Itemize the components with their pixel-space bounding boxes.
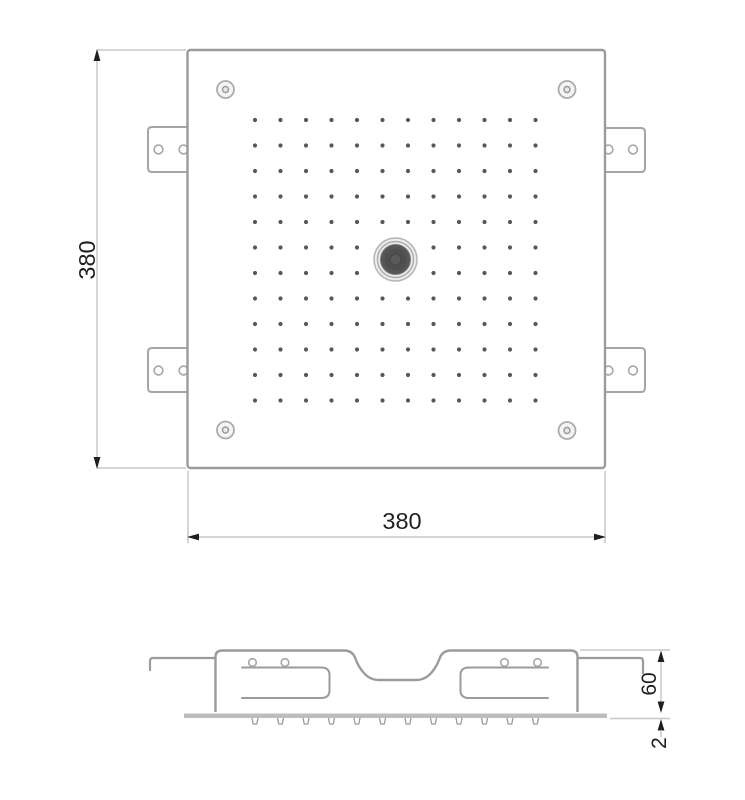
spray-nozzle-dot	[278, 373, 282, 377]
spray-nozzle-dot	[380, 398, 384, 402]
spray-nozzle-dot	[278, 296, 282, 300]
spray-nozzle-dot	[355, 373, 359, 377]
spray-nozzle-dot	[278, 143, 282, 147]
mounting-bracket-bottom-left	[148, 348, 189, 392]
spray-nozzle-dot	[329, 271, 333, 275]
spray-nozzle-dot	[253, 169, 257, 173]
spray-nozzle-dot	[457, 373, 461, 377]
spray-nozzle-dot	[355, 347, 359, 351]
dimension-label-plate-thickness: 2	[648, 737, 671, 749]
spray-nozzle-dot	[457, 271, 461, 275]
spray-nozzle-dot	[431, 245, 435, 249]
side-nozzle-tick	[507, 718, 513, 724]
spray-nozzle-dot	[329, 373, 333, 377]
spray-nozzle-dot	[482, 373, 486, 377]
spray-nozzle-dot	[355, 271, 359, 275]
spray-nozzle-dot	[304, 194, 308, 198]
spray-nozzle-dot	[533, 245, 537, 249]
side-hook-left	[150, 658, 214, 670]
spray-nozzle-dot	[508, 169, 512, 173]
spray-nozzle-dot	[380, 118, 384, 122]
side-nozzle-tick	[329, 718, 335, 724]
spray-nozzle-dot	[533, 398, 537, 402]
spray-nozzle-dot	[482, 169, 486, 173]
spray-nozzle-dot	[533, 296, 537, 300]
spray-nozzle-dot	[457, 245, 461, 249]
spray-nozzle-dot	[533, 220, 537, 224]
spray-nozzle-dot	[457, 143, 461, 147]
spray-nozzle-dot	[380, 373, 384, 377]
spray-nozzle-dot	[482, 194, 486, 198]
spray-nozzle-dot	[253, 245, 257, 249]
spray-nozzle-dot	[533, 271, 537, 275]
spray-nozzle-dot	[355, 220, 359, 224]
spray-nozzle-dot	[457, 169, 461, 173]
spray-nozzle-dot	[355, 398, 359, 402]
corner-screw-top-left	[217, 81, 234, 98]
spray-nozzle-dot	[304, 296, 308, 300]
spray-nozzle-dot	[508, 194, 512, 198]
spray-nozzle-dot	[482, 118, 486, 122]
spray-nozzle-dot	[253, 322, 257, 326]
technical-drawing-canvas: 380 380	[0, 0, 745, 800]
dimension-height: 380	[74, 49, 186, 469]
spray-nozzle-dot	[482, 296, 486, 300]
spray-nozzle-dot	[533, 118, 537, 122]
spray-nozzle-dot	[533, 322, 537, 326]
spray-nozzle-dot	[508, 143, 512, 147]
spray-nozzle-dot	[457, 118, 461, 122]
spray-nozzle-dot	[304, 347, 308, 351]
side-nozzle-tick	[278, 718, 284, 724]
dimension-label-width: 380	[382, 508, 421, 534]
side-hook-right	[579, 658, 643, 673]
spray-nozzle-dot	[406, 118, 410, 122]
arrow-right-icon	[594, 534, 606, 541]
spray-nozzle-dot	[406, 296, 410, 300]
spray-nozzle-dot	[431, 373, 435, 377]
top-view: 380 380	[74, 49, 645, 543]
spray-nozzle-dot	[355, 296, 359, 300]
spray-nozzle-dot	[508, 220, 512, 224]
spray-nozzle-dot	[355, 143, 359, 147]
spray-nozzle-dot	[508, 373, 512, 377]
corner-screw-top-right	[559, 81, 576, 98]
spray-nozzle-dot	[457, 296, 461, 300]
spray-nozzle-dot	[278, 194, 282, 198]
bracket-hole	[154, 145, 163, 154]
spray-nozzle-dot	[406, 322, 410, 326]
spray-nozzle-dot	[431, 194, 435, 198]
spray-nozzle-dot	[278, 118, 282, 122]
spray-nozzle-dot	[406, 194, 410, 198]
spray-nozzle-dot	[431, 322, 435, 326]
spray-nozzle-dot	[304, 271, 308, 275]
spray-nozzle-dot	[482, 271, 486, 275]
spray-nozzle-dot	[278, 245, 282, 249]
spray-nozzle-dot	[253, 296, 257, 300]
spray-nozzle-dot	[508, 398, 512, 402]
spray-nozzle-dot	[253, 271, 257, 275]
flange-hole	[249, 659, 257, 667]
side-nozzle-tick	[456, 718, 462, 724]
spray-nozzle-dot	[304, 169, 308, 173]
spray-nozzle-dot	[482, 245, 486, 249]
spray-nozzle-dot	[355, 322, 359, 326]
side-nozzle-tick	[533, 718, 539, 724]
side-nozzle-tick	[405, 718, 411, 724]
spray-nozzle-dot	[329, 398, 333, 402]
face-plate	[184, 714, 607, 719]
arrow-up-icon	[658, 651, 665, 663]
spray-nozzle-dot	[329, 220, 333, 224]
spray-nozzle-dot	[355, 118, 359, 122]
bracket-hole	[629, 366, 638, 375]
spray-nozzle-dot	[304, 373, 308, 377]
spray-nozzle-dot	[253, 143, 257, 147]
spray-nozzle-dot	[278, 322, 282, 326]
spray-nozzle-dot	[380, 143, 384, 147]
spray-nozzle-dot	[304, 398, 308, 402]
flange-hole	[281, 659, 289, 667]
mounting-bracket-bottom-right	[603, 348, 645, 392]
spray-nozzle-dot	[508, 322, 512, 326]
spray-nozzle-dot	[278, 220, 282, 224]
spray-nozzle-dot	[431, 143, 435, 147]
spray-nozzle-dot	[278, 169, 282, 173]
shower-head-drawing: 380 380	[0, 0, 745, 800]
spray-nozzle-dot	[355, 245, 359, 249]
spray-nozzle-dot	[304, 118, 308, 122]
spray-nozzle-dot	[406, 373, 410, 377]
spray-nozzle-dot	[355, 194, 359, 198]
bracket-hole	[154, 366, 163, 375]
spray-nozzle-dot	[533, 373, 537, 377]
flange-hole	[534, 659, 542, 667]
spray-nozzle-dot	[508, 296, 512, 300]
spray-nozzle-dot	[431, 118, 435, 122]
spray-nozzle-dot	[329, 296, 333, 300]
side-nozzle-tick	[380, 718, 386, 724]
spray-nozzle-dot	[304, 245, 308, 249]
arrow-down-icon	[658, 702, 665, 714]
spray-nozzle-dot	[329, 169, 333, 173]
spray-nozzle-dot	[253, 398, 257, 402]
spray-nozzle-dot	[431, 347, 435, 351]
corner-screw-bottom-right	[559, 422, 576, 439]
spray-nozzle-dot	[457, 194, 461, 198]
arrow-up-icon	[658, 719, 665, 731]
arrow-down-icon	[94, 457, 101, 469]
dimension-label-depth: 60	[638, 672, 661, 695]
spray-nozzle-dot	[278, 347, 282, 351]
spray-nozzle-dot	[533, 143, 537, 147]
spray-nozzle-dot	[533, 347, 537, 351]
spray-nozzle-dot	[380, 169, 384, 173]
spray-nozzle-dot	[278, 398, 282, 402]
spray-nozzle-dot	[508, 271, 512, 275]
arrow-left-icon	[187, 534, 199, 541]
spray-nozzle-dot	[406, 220, 410, 224]
spray-nozzle-dot	[406, 143, 410, 147]
spray-nozzle-dot	[380, 322, 384, 326]
spray-nozzle-dot	[431, 271, 435, 275]
spray-nozzle-dot	[482, 398, 486, 402]
spray-nozzle-dot	[406, 169, 410, 173]
side-nozzle-tick	[303, 718, 309, 724]
bracket-hole	[629, 145, 638, 154]
dimension-depth: 60	[580, 650, 670, 713]
side-nozzle-ticks	[252, 718, 539, 724]
spray-nozzle-dot	[457, 347, 461, 351]
spray-nozzle-dot	[329, 143, 333, 147]
mounting-bracket-top-left	[148, 127, 189, 172]
spray-nozzle-dot	[482, 322, 486, 326]
side-nozzle-tick	[252, 718, 258, 724]
dimension-label-height: 380	[74, 240, 100, 279]
spray-nozzle-dot	[380, 194, 384, 198]
side-nozzle-tick	[354, 718, 360, 724]
spray-nozzle-dot	[380, 347, 384, 351]
spray-nozzle-dot	[253, 118, 257, 122]
spray-nozzle-dot	[304, 143, 308, 147]
spray-nozzle-dot	[329, 245, 333, 249]
spray-nozzle-dot	[406, 398, 410, 402]
spray-nozzle-dot	[329, 347, 333, 351]
spray-nozzle-dot	[355, 169, 359, 173]
spray-nozzle-dot	[329, 194, 333, 198]
spray-nozzle-dot	[457, 322, 461, 326]
spray-nozzle-dot	[431, 398, 435, 402]
spray-nozzle-dot	[508, 118, 512, 122]
spray-nozzle-dot	[482, 143, 486, 147]
spray-nozzle-dot	[304, 220, 308, 224]
corner-screw-bottom-left	[217, 422, 234, 439]
spray-nozzle-dot	[508, 245, 512, 249]
spray-nozzle-dot	[482, 347, 486, 351]
spray-nozzle-dot	[431, 296, 435, 300]
spray-nozzle-dot	[278, 271, 282, 275]
spray-nozzle-dot	[406, 347, 410, 351]
spray-nozzle-dot	[253, 373, 257, 377]
spray-nozzle-dot	[380, 220, 384, 224]
side-nozzle-tick	[482, 718, 488, 724]
spray-nozzle-dot	[253, 220, 257, 224]
spray-nozzle-dot	[457, 398, 461, 402]
flange-hole	[501, 659, 509, 667]
spray-nozzle-dot	[329, 322, 333, 326]
spray-nozzle-dot	[253, 347, 257, 351]
spray-nozzle-dot	[431, 169, 435, 173]
spray-nozzle-dot	[533, 194, 537, 198]
spray-nozzle-dot	[482, 220, 486, 224]
center-knob	[374, 238, 417, 281]
side-nozzle-tick	[431, 718, 437, 724]
spray-nozzle-dot	[508, 347, 512, 351]
spray-nozzle-dot	[533, 169, 537, 173]
mounting-bracket-top-right	[603, 128, 645, 172]
spray-nozzle-dot	[329, 118, 333, 122]
housing-profile	[216, 651, 578, 713]
dimension-plate-thickness: 2	[610, 719, 671, 749]
dimension-width: 380	[187, 471, 606, 543]
spray-nozzle-dot	[431, 220, 435, 224]
arrow-up-icon	[94, 49, 101, 61]
spray-nozzle-dot	[380, 296, 384, 300]
spray-nozzle-dot	[304, 322, 308, 326]
spray-nozzle-dot	[253, 194, 257, 198]
spray-nozzle-dot	[457, 220, 461, 224]
side-view: 60 2	[150, 650, 671, 749]
